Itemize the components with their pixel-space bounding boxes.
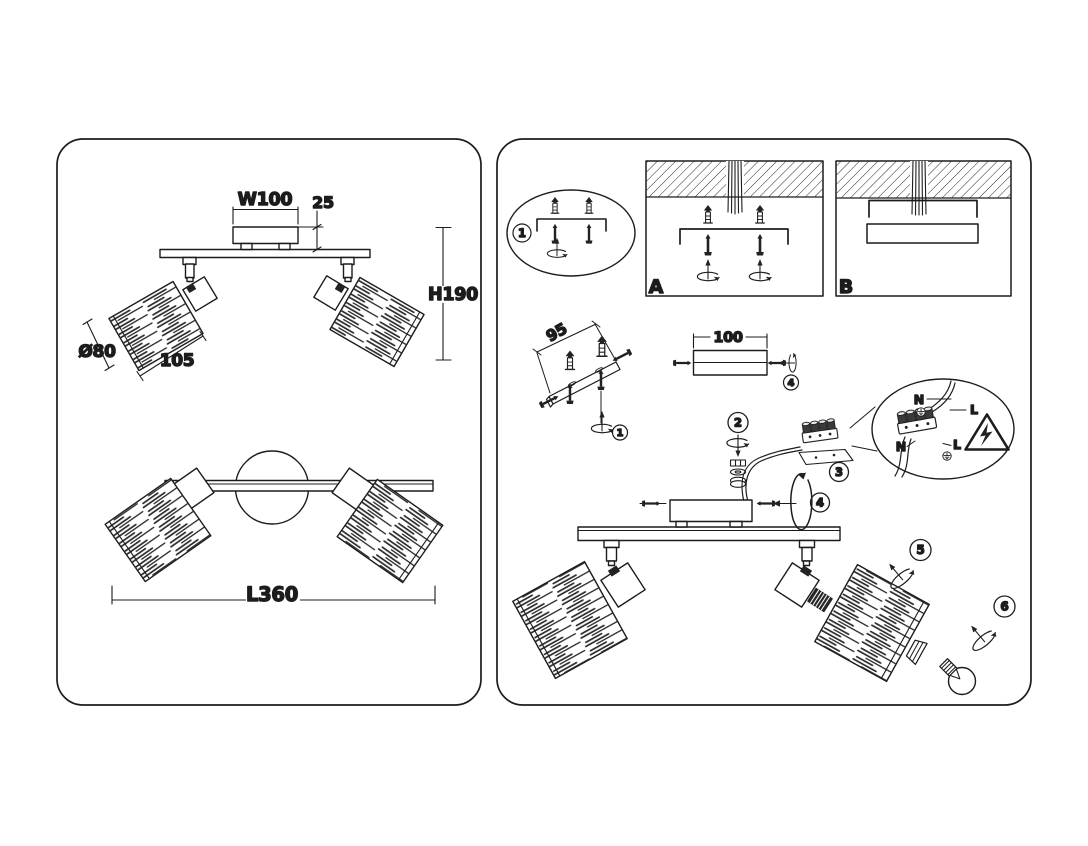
option-b-label: B bbox=[839, 276, 853, 298]
canopy-foot bbox=[279, 244, 290, 250]
step-number: 5 bbox=[916, 543, 924, 557]
canopy-foot bbox=[730, 522, 742, 528]
mounting-option-a: A bbox=[646, 161, 823, 298]
mounting-bar-100: 100 4 bbox=[673, 330, 798, 390]
wall-plug-icon bbox=[565, 351, 574, 370]
screw-icon bbox=[757, 500, 775, 506]
dimension-25 bbox=[298, 211, 323, 252]
left-lamp-assembled bbox=[513, 541, 645, 679]
earth-icon bbox=[917, 408, 925, 416]
bracket-bar-3d bbox=[549, 362, 620, 404]
screw-icon bbox=[642, 500, 660, 506]
neutral-label: N bbox=[896, 439, 906, 454]
swivel-knuckle bbox=[601, 563, 645, 607]
screw-icon bbox=[673, 360, 691, 366]
step-number: 6 bbox=[1000, 600, 1008, 614]
live-label: L bbox=[970, 402, 978, 417]
screw-rotation-icon bbox=[591, 411, 613, 433]
shade-length-label: 105 bbox=[160, 351, 195, 371]
step-number: 2 bbox=[734, 416, 742, 430]
assembly-view: 4 bbox=[513, 473, 1015, 701]
step-number: 4 bbox=[788, 378, 795, 389]
twist-rotation-icon bbox=[961, 617, 998, 654]
step3-terminal: 3 bbox=[799, 407, 877, 482]
step2-washers: 2 bbox=[727, 413, 749, 488]
canopy-foot bbox=[676, 522, 687, 528]
earth-icon bbox=[943, 452, 951, 460]
mounting-plate bbox=[867, 224, 978, 243]
bracket-95-assembly: 95 1 bbox=[533, 320, 633, 440]
detail-bubble bbox=[872, 379, 1014, 479]
step-number: 3 bbox=[835, 465, 843, 479]
swivel-knuckle bbox=[314, 276, 348, 310]
mounting-bar bbox=[160, 250, 370, 258]
rotation-arrow bbox=[791, 474, 812, 530]
right-lamp-side bbox=[314, 258, 424, 367]
live-label: L bbox=[953, 437, 961, 452]
wiring-detail: N L N L bbox=[872, 379, 1014, 479]
terminal-block bbox=[801, 418, 838, 443]
shade-diameter-label: Ø80 bbox=[78, 342, 116, 362]
nut-and-washers bbox=[731, 460, 746, 487]
right-panel: 1 A bbox=[497, 139, 1031, 705]
diagram-svg: W100 25 H190 bbox=[0, 0, 1088, 846]
step-number: 4 bbox=[816, 496, 824, 510]
mounting-option-b: B bbox=[836, 161, 1011, 298]
right-shade bbox=[815, 565, 929, 682]
neutral-label: N bbox=[914, 392, 924, 407]
screw-rotation-icon bbox=[778, 354, 797, 372]
bar-length-label: 100 bbox=[713, 330, 743, 346]
canopy-foot bbox=[241, 244, 252, 250]
canopy-width-label: W100 bbox=[238, 190, 293, 210]
left-panel-border bbox=[57, 139, 481, 705]
option-a-label: A bbox=[649, 276, 664, 298]
fixture-height-label: H190 bbox=[428, 285, 478, 305]
bracket-spacing-label: 95 bbox=[543, 320, 570, 346]
terminal-plate bbox=[799, 450, 853, 465]
step-number: 1 bbox=[518, 226, 526, 240]
canopy bbox=[233, 227, 298, 244]
detail-bubble bbox=[507, 190, 635, 276]
wall-plug-icon bbox=[597, 336, 607, 357]
instruction-sheet: W100 25 H190 bbox=[0, 0, 1088, 846]
fixture-length-label: L360 bbox=[246, 583, 298, 606]
right-lamp-exploded bbox=[775, 541, 981, 701]
step-number: 1 bbox=[617, 428, 624, 439]
step1-detail: 1 bbox=[507, 190, 635, 276]
canopy-height-label: 25 bbox=[312, 193, 334, 212]
screw-icon bbox=[611, 348, 632, 364]
bottom-view-drawing: L360 bbox=[105, 451, 443, 606]
light-bulb bbox=[934, 653, 981, 700]
side-view-drawing: W100 25 H190 bbox=[78, 190, 478, 381]
canopy bbox=[670, 500, 752, 522]
left-panel: W100 25 H190 bbox=[57, 139, 481, 705]
screw-rotation-down-icon bbox=[727, 435, 749, 457]
supply-wires bbox=[742, 447, 802, 502]
